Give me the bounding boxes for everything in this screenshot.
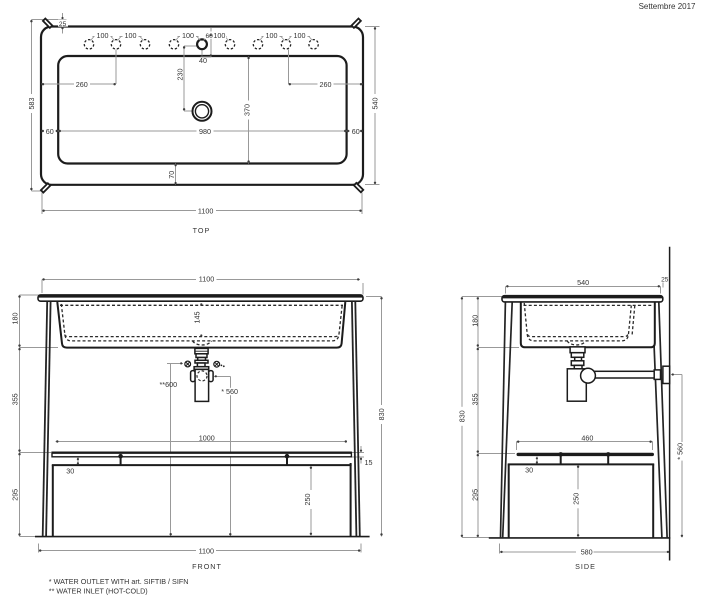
svg-text:295: 295: [471, 489, 480, 501]
svg-text:100: 100: [294, 31, 306, 40]
svg-text:60: 60: [352, 127, 360, 136]
svg-text:* WATER OUTLET WITH art. SIFT: * WATER OUTLET WITH art. SIFTIB / SIFN: [49, 577, 189, 586]
svg-text:FRONT: FRONT: [192, 562, 222, 571]
svg-text:540: 540: [370, 98, 379, 110]
svg-text:830: 830: [377, 408, 386, 420]
svg-text:250: 250: [303, 494, 312, 506]
svg-text:15: 15: [365, 458, 373, 467]
svg-text:370: 370: [242, 104, 251, 116]
svg-text:583: 583: [27, 98, 36, 110]
svg-text:100: 100: [213, 31, 225, 40]
svg-text:1100: 1100: [199, 275, 214, 284]
svg-text:980: 980: [199, 127, 211, 136]
svg-text:30: 30: [525, 465, 533, 474]
svg-text:* 560: * 560: [676, 443, 685, 460]
svg-text:180: 180: [471, 315, 480, 327]
svg-text:580: 580: [581, 548, 593, 557]
svg-text:230: 230: [176, 69, 185, 81]
svg-text:295: 295: [10, 489, 19, 501]
svg-text:100: 100: [266, 31, 278, 40]
svg-text:540: 540: [577, 278, 589, 287]
svg-text:1100: 1100: [199, 546, 214, 555]
svg-text:260: 260: [320, 80, 332, 89]
svg-text:250: 250: [571, 493, 580, 505]
svg-text:1000: 1000: [199, 433, 215, 442]
svg-text:SIDE: SIDE: [575, 562, 596, 571]
svg-text:30: 30: [66, 467, 74, 476]
svg-text:355: 355: [471, 393, 480, 405]
svg-text:180: 180: [10, 313, 19, 325]
svg-text:60: 60: [206, 33, 214, 40]
svg-text:460: 460: [581, 434, 593, 443]
svg-text:100: 100: [97, 31, 109, 40]
svg-text:355: 355: [10, 393, 19, 405]
svg-text:25: 25: [661, 277, 669, 284]
svg-text:145: 145: [192, 312, 201, 324]
svg-text:** WATER INLET (HOT-COLD): ** WATER INLET (HOT-COLD): [49, 587, 148, 596]
svg-text:Settembre 2017: Settembre 2017: [639, 2, 696, 11]
svg-text:**600: **600: [160, 380, 178, 389]
svg-text:60: 60: [46, 127, 54, 136]
svg-text:TOP: TOP: [193, 226, 211, 235]
svg-text:25: 25: [59, 21, 67, 28]
svg-text:100: 100: [182, 31, 194, 40]
svg-text:100: 100: [125, 31, 137, 40]
svg-text:40: 40: [199, 56, 207, 65]
svg-text:70: 70: [167, 171, 176, 179]
svg-text:1100: 1100: [198, 206, 213, 215]
svg-text:830: 830: [457, 410, 466, 422]
svg-text:260: 260: [76, 80, 88, 89]
svg-text:* 560: * 560: [221, 387, 238, 396]
